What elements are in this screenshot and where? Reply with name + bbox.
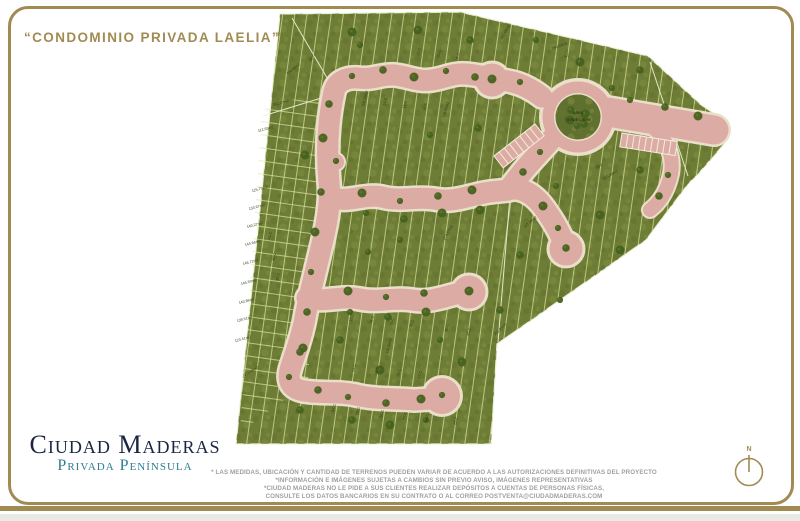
- page-bottom-strip: [0, 514, 800, 521]
- gold-bottom-rule: [0, 506, 800, 511]
- brand-logo: Ciudad Maderas Privada Península: [10, 433, 240, 474]
- legal-disclaimer: * LAS MEDIDAS, UBICACIÓN Y CANTIDAD DE T…: [200, 469, 668, 501]
- plat-map-page: 234.84m2261.27m2112.65m2125.70m2133.67m2…: [0, 0, 800, 521]
- compass-n-label: N: [746, 446, 751, 453]
- brand-name: Ciudad Maderas: [10, 433, 240, 457]
- disclaimer-line: *INFORMACIÓN E IMÁGENES SUJETAS A CAMBIO…: [200, 477, 668, 485]
- disclaimer-line: *CIUDAD MADERAS NO LE PIDE A SUS CLIENTE…: [200, 485, 668, 493]
- page-title: “CONDOMINIO PRIVADA LAELIA”: [24, 30, 280, 45]
- roundabout-label-line1: AREA: [573, 111, 584, 115]
- roundabout-label-line2: VERDE LIBRE: [565, 118, 591, 122]
- map-graphic: 234.84m2261.27m2112.65m2125.70m2133.67m2…: [234, 12, 725, 444]
- disclaimer-line: CONSULTE LOS DATOS BANCARIOS EN SU CONTR…: [200, 493, 668, 501]
- disclaimer-line: * LAS MEDIDAS, UBICACIÓN Y CANTIDAD DE T…: [200, 469, 668, 477]
- north-compass-icon: N: [726, 442, 772, 494]
